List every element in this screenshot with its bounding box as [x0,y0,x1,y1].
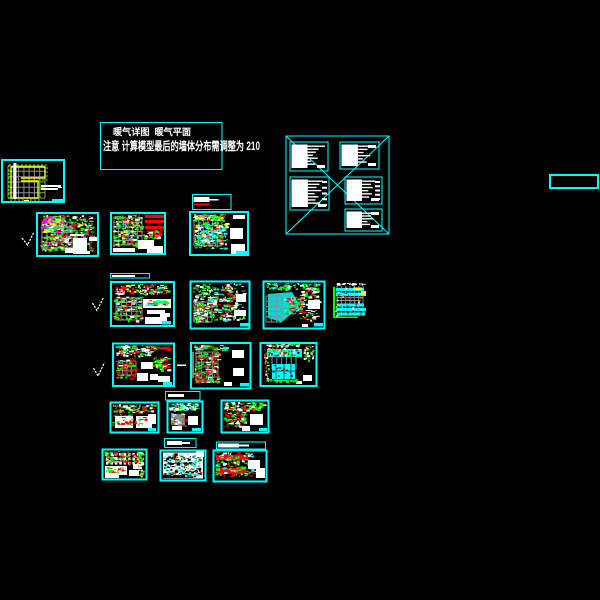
svg-text:暖气详图 暖气平面: 暖气详图 暖气平面 [113,126,191,137]
svg-text:注意 计算模型最后的墙体分布需调整为 210: 注意 计算模型最后的墙体分布需调整为 210 [103,139,260,153]
